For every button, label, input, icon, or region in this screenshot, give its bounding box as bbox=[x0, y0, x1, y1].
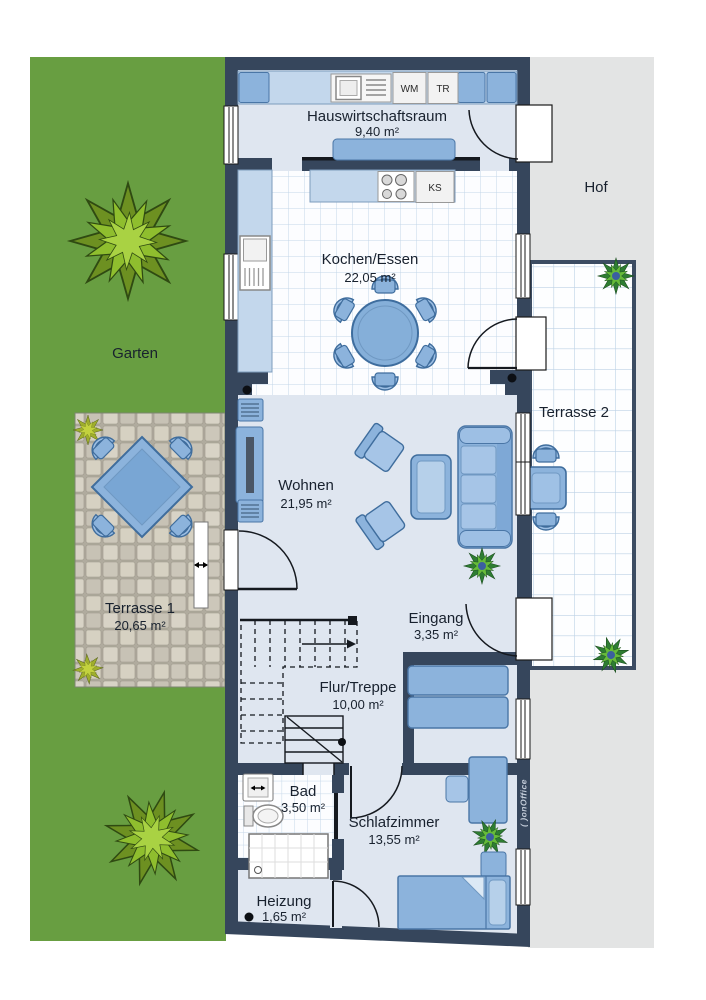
pillow bbox=[489, 880, 506, 925]
nightstand bbox=[481, 852, 506, 877]
washing-machine-label: WM bbox=[401, 84, 419, 95]
window bbox=[516, 413, 530, 515]
sofa bbox=[458, 426, 512, 548]
tv-sideboard bbox=[236, 399, 263, 522]
plant-icon bbox=[464, 548, 500, 584]
hallway-area: 10,00 m² bbox=[332, 697, 384, 712]
desk-chair bbox=[446, 776, 468, 802]
entrance-name: Eingang bbox=[408, 610, 463, 627]
terrace2-name: Terrasse 2 bbox=[539, 404, 609, 421]
heating-room: Heizung 1,65 m² bbox=[256, 893, 311, 924]
coffee-table bbox=[411, 455, 451, 519]
terrace1-area: 20,65 m² bbox=[114, 618, 166, 633]
kitchen-sink-icon bbox=[240, 236, 270, 290]
stove-icon bbox=[378, 172, 414, 202]
garden-tree-icon bbox=[70, 183, 187, 300]
shower-icon bbox=[249, 834, 328, 878]
entrance-area: 3,35 m² bbox=[414, 627, 459, 642]
fridge-label: KS bbox=[428, 183, 442, 194]
living-name: Wohnen bbox=[278, 477, 334, 494]
window bbox=[224, 254, 238, 320]
bathroom-area: 3,50 m² bbox=[281, 800, 326, 815]
kitchen-area: 22,05 m² bbox=[344, 270, 396, 285]
dryer-icon: TR bbox=[428, 73, 458, 104]
bedroom-area: 13,55 m² bbox=[368, 832, 420, 847]
sideboard bbox=[333, 139, 455, 160]
cabinet bbox=[487, 73, 516, 103]
plant-icon bbox=[598, 258, 634, 294]
window bbox=[516, 699, 530, 759]
bedroom-name: Schlafzimmer bbox=[349, 814, 440, 831]
cabinet bbox=[239, 73, 269, 103]
bathroom-name: Bad bbox=[290, 783, 317, 800]
onoffice-watermark: ( )onOffice bbox=[519, 779, 529, 827]
heating-area: 1,65 m² bbox=[262, 909, 307, 924]
sink-icon bbox=[331, 74, 391, 102]
kitchen-name: Kochen/Essen bbox=[322, 251, 419, 268]
living-area: 21,95 m² bbox=[280, 496, 332, 511]
heating-name: Heizung bbox=[256, 893, 311, 910]
yard-label: Hof bbox=[584, 179, 608, 196]
utility-name: Hauswirtschaftsraum bbox=[307, 108, 447, 125]
window bbox=[516, 234, 530, 298]
garden-label: Garten bbox=[112, 345, 158, 362]
toilet-icon bbox=[244, 805, 283, 827]
window bbox=[224, 106, 238, 164]
fridge-icon: KS bbox=[416, 172, 454, 203]
cabinet bbox=[458, 73, 485, 103]
terrace1-dining-set bbox=[87, 432, 198, 543]
hallway-name: Flur/Treppe bbox=[320, 679, 397, 696]
floorplan-page: WM TR Hauswirtschaftsraum 9,40 m² bbox=[0, 0, 706, 1000]
dryer-label: TR bbox=[436, 84, 449, 95]
floorplan-svg: WM TR Hauswirtschaftsraum 9,40 m² bbox=[0, 0, 706, 1000]
washbasin-icon bbox=[243, 774, 273, 801]
bed bbox=[398, 876, 510, 929]
utility-area: 9,40 m² bbox=[355, 124, 400, 139]
tv-screen bbox=[246, 437, 254, 493]
wardrobe bbox=[408, 666, 508, 728]
terrace1-name: Terrasse 1 bbox=[105, 600, 175, 617]
window bbox=[516, 849, 530, 905]
washing-machine-icon: WM bbox=[393, 73, 426, 104]
